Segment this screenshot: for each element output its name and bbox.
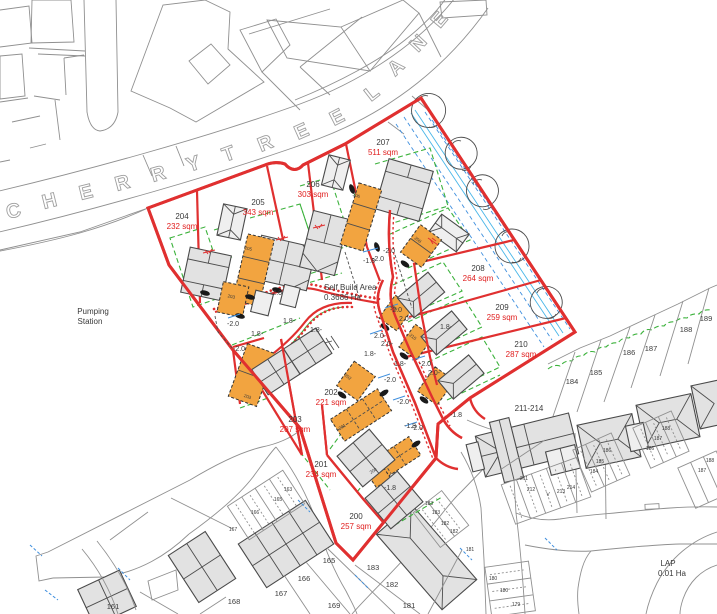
svg-text:161: 161	[107, 602, 120, 611]
svg-text:204: 204	[175, 212, 189, 221]
svg-text:200: 200	[349, 512, 363, 521]
svg-text:Self Build Area: Self Build Area	[324, 283, 377, 292]
svg-text:165: 165	[323, 556, 336, 565]
svg-text:185: 185	[596, 459, 605, 465]
svg-text:169: 169	[328, 601, 341, 610]
svg-text:1.8-: 1.8-	[440, 324, 453, 331]
svg-text:207: 207	[376, 138, 390, 147]
svg-text:232 sqm: 232 sqm	[167, 222, 198, 231]
svg-text:1.8-: 1.8-	[283, 318, 296, 325]
svg-text:181: 181	[403, 601, 416, 610]
svg-text:303 sqm: 303 sqm	[298, 190, 329, 199]
svg-text:183: 183	[425, 501, 434, 507]
svg-text:LAP: LAP	[660, 559, 675, 568]
svg-text:1.8-: 1.8-	[364, 351, 377, 358]
svg-text:-1.8: -1.8	[384, 485, 396, 492]
svg-text:205: 205	[251, 198, 265, 207]
svg-text:2.0-: 2.0-	[428, 370, 441, 377]
svg-text:207 sqm: 207 sqm	[280, 425, 311, 434]
svg-text:184: 184	[566, 377, 579, 386]
svg-text:209: 209	[495, 303, 509, 312]
svg-text:187: 187	[698, 468, 707, 474]
svg-text:180: 180	[500, 588, 509, 594]
svg-text:168: 168	[228, 597, 241, 606]
svg-text:1.8-: 1.8-	[310, 327, 323, 334]
svg-text:-2.0: -2.0	[419, 361, 431, 368]
svg-text:343 sqm: 343 sqm	[243, 208, 274, 217]
svg-text:186: 186	[623, 348, 636, 357]
svg-text:Station: Station	[78, 317, 103, 326]
svg-text:2.0-: 2.0-	[374, 333, 387, 340]
svg-text:187: 187	[654, 436, 663, 442]
svg-text:287 sqm: 287 sqm	[506, 350, 537, 359]
svg-text:185: 185	[590, 368, 603, 377]
svg-text:211-214: 211-214	[515, 404, 544, 413]
svg-text:-2.0: -2.0	[384, 377, 396, 384]
svg-text:183: 183	[432, 510, 441, 516]
svg-text:234 sqm: 234 sqm	[306, 470, 337, 479]
svg-text:Pumping: Pumping	[77, 307, 109, 316]
svg-text:511 sqm: 511 sqm	[368, 148, 398, 157]
svg-text:214: 214	[567, 485, 576, 491]
svg-text:182: 182	[450, 529, 459, 535]
svg-text:257 sqm: 257 sqm	[341, 522, 372, 531]
svg-text:1.8-: 1.8-	[251, 331, 264, 338]
svg-text:183: 183	[367, 563, 380, 572]
svg-text:182: 182	[441, 521, 450, 527]
svg-text:180: 180	[489, 576, 498, 582]
svg-text:2.0-: 2.0-	[399, 316, 412, 323]
svg-text:181: 181	[466, 547, 475, 553]
svg-text:0.01 Ha: 0.01 Ha	[658, 569, 687, 578]
svg-text:264 sqm: 264 sqm	[463, 274, 494, 283]
svg-text:186: 186	[603, 448, 612, 454]
svg-text:202: 202	[324, 388, 338, 397]
svg-text:167: 167	[275, 589, 288, 598]
svg-text:213: 213	[557, 489, 566, 495]
svg-text:188: 188	[706, 458, 715, 464]
svg-text:259 sqm: 259 sqm	[487, 313, 518, 322]
svg-text:186: 186	[646, 446, 655, 452]
svg-text:166: 166	[298, 574, 311, 583]
svg-text:203: 203	[288, 415, 302, 424]
svg-text:-2.0: -2.0	[270, 290, 282, 297]
svg-text:1.8-: 1.8-	[394, 361, 407, 368]
svg-text:-1.8: -1.8	[450, 412, 462, 419]
svg-text:188: 188	[662, 426, 671, 432]
svg-text:212: 212	[527, 487, 536, 493]
svg-text:210: 210	[514, 340, 528, 349]
svg-text:-2.0: -2.0	[233, 346, 245, 353]
svg-text:187: 187	[645, 344, 658, 353]
svg-text:188: 188	[680, 325, 693, 334]
svg-text:165: 165	[274, 497, 283, 503]
svg-text:-2.0: -2.0	[383, 248, 395, 255]
svg-text:189: 189	[700, 314, 713, 323]
svg-text:221 sqm: 221 sqm	[316, 398, 347, 407]
svg-text:179: 179	[512, 602, 521, 608]
svg-text:-2.0: -2.0	[390, 307, 402, 314]
svg-text:167: 167	[229, 527, 238, 533]
svg-text:2.0-: 2.0-	[381, 341, 394, 348]
svg-text:163: 163	[284, 487, 293, 493]
svg-text:208: 208	[471, 264, 485, 273]
svg-text:182: 182	[386, 580, 399, 589]
svg-text:184: 184	[590, 469, 599, 475]
svg-text:-2.0: -2.0	[397, 399, 409, 406]
svg-text:206: 206	[306, 180, 320, 189]
svg-text:211: 211	[520, 476, 528, 482]
svg-text:0.3686 Ha: 0.3686 Ha	[324, 293, 361, 302]
svg-text:166: 166	[251, 510, 260, 516]
svg-text:-1.8: -1.8	[404, 423, 416, 430]
svg-text:-1.8: -1.8	[363, 258, 375, 265]
svg-text:-2.0: -2.0	[227, 321, 239, 328]
svg-text:201: 201	[314, 460, 328, 469]
